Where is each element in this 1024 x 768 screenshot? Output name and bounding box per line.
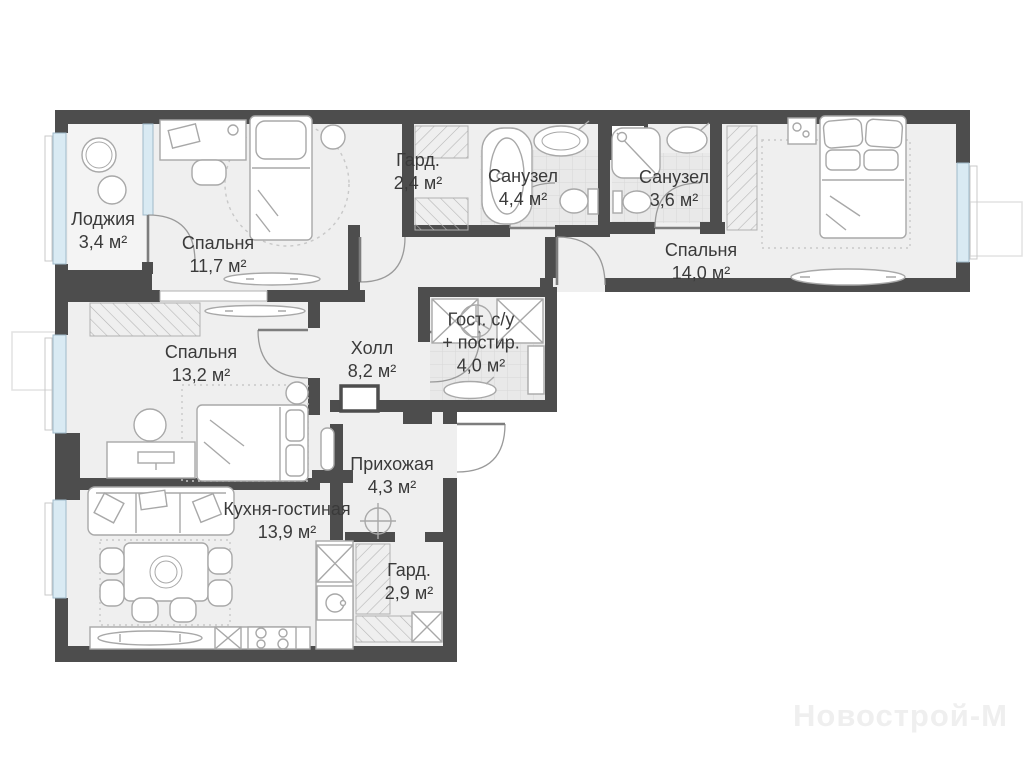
toilet-bowl bbox=[560, 189, 588, 213]
closet-bedroom2 bbox=[727, 126, 757, 230]
side-table bbox=[321, 125, 345, 149]
window-bedroom3 bbox=[53, 335, 66, 433]
glazing-loggia-partition bbox=[143, 124, 153, 215]
side-table bbox=[286, 382, 308, 404]
desk-chair bbox=[192, 160, 226, 185]
toilet-tank bbox=[588, 189, 598, 214]
watermark: Новострой-М bbox=[793, 698, 1008, 734]
floor-plan: Лоджия3,4 м² Спальня11,7 м² Гард.2,4 м² … bbox=[0, 0, 1024, 768]
cabinet bbox=[528, 346, 544, 394]
window-kitchen bbox=[53, 500, 66, 598]
toilet-bowl bbox=[623, 191, 651, 213]
shelving-wardrobe2-bottom bbox=[356, 616, 412, 642]
oven bbox=[317, 586, 353, 620]
shelving-wardrobe1-top bbox=[415, 126, 468, 158]
slider-door bbox=[205, 306, 305, 317]
shelving-wardrobe1-bottom bbox=[415, 198, 468, 230]
shelving-wardrobe2-side bbox=[356, 544, 390, 614]
chair bbox=[170, 598, 196, 622]
window-bedroom2 bbox=[957, 163, 969, 262]
floor-plan-drawing bbox=[0, 0, 1024, 768]
wardrobe2-fixtures bbox=[412, 612, 442, 642]
shelving-bedroom3 bbox=[90, 303, 200, 336]
chair bbox=[100, 580, 124, 606]
nightstand bbox=[788, 118, 816, 144]
door-arc-entrance bbox=[457, 424, 505, 472]
toilet-tank bbox=[613, 191, 622, 213]
chair bbox=[132, 598, 158, 622]
chair bbox=[100, 548, 124, 574]
radiator bbox=[224, 273, 320, 285]
dining-table bbox=[124, 543, 208, 601]
chair bbox=[208, 548, 232, 574]
stove bbox=[248, 627, 296, 649]
desk-chair bbox=[134, 409, 166, 441]
radiator-pill bbox=[321, 428, 334, 470]
opening-frame bbox=[160, 291, 267, 301]
window-loggia bbox=[53, 133, 66, 264]
vent-shaft-guestwc bbox=[341, 386, 378, 411]
sink bbox=[444, 382, 496, 399]
chair bbox=[208, 580, 232, 606]
